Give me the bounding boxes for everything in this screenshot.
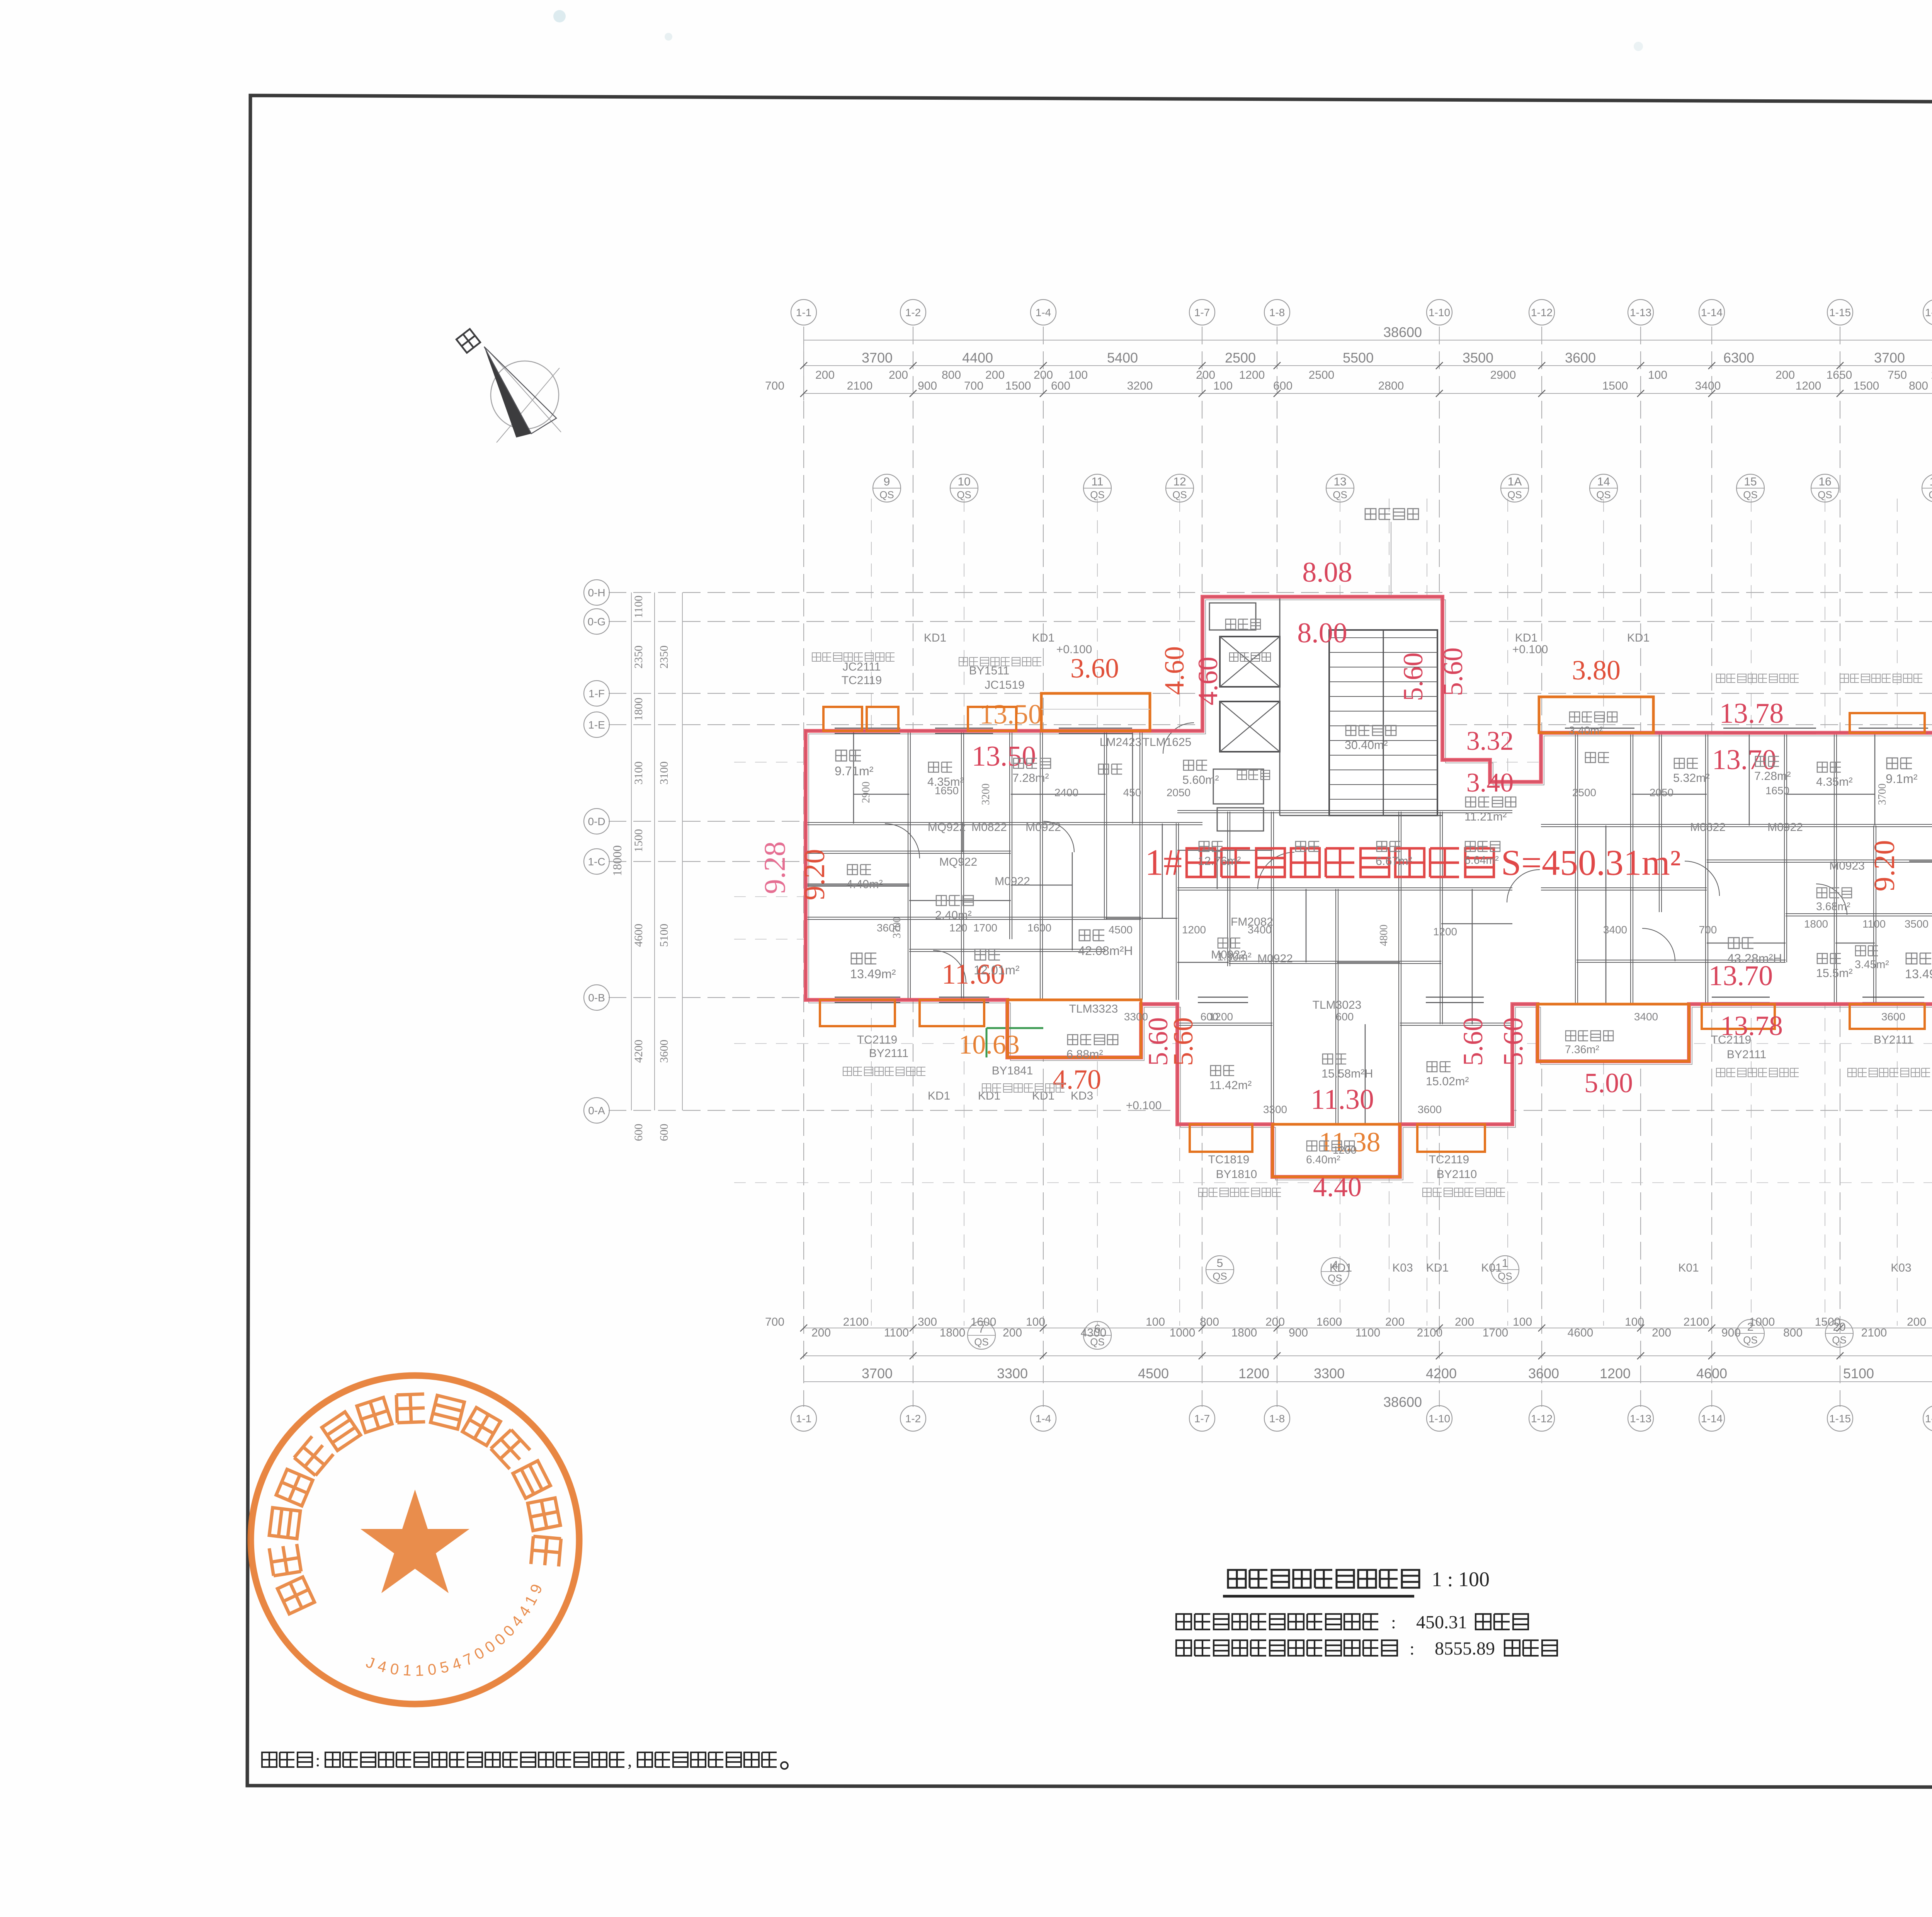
svg-text:800: 800 [1783,1326,1803,1339]
svg-text:2350: 2350 [658,645,670,669]
svg-text:QS: QS [1832,1334,1847,1346]
svg-text:1 : 100: 1 : 100 [1432,1568,1490,1591]
svg-text:1200: 1200 [1433,926,1457,938]
svg-text:1800: 1800 [940,1326,966,1339]
svg-text:1100: 1100 [884,1326,909,1339]
svg-text:K03: K03 [1891,1262,1911,1274]
svg-text:12.76m²: 12.76m² [1198,855,1241,868]
svg-text:QS: QS [1818,489,1832,501]
svg-text:5400: 5400 [1107,350,1138,366]
svg-text:13: 13 [1333,475,1346,488]
svg-text:1700: 1700 [973,922,997,934]
svg-text:1500: 1500 [632,829,645,852]
svg-text:1500: 1500 [1005,380,1031,392]
svg-text:1800: 1800 [1804,918,1828,930]
svg-text:1500: 1500 [1854,380,1879,392]
svg-text:2400: 2400 [1054,787,1078,798]
svg-text:4200: 4200 [1426,1365,1457,1381]
svg-text:1100: 1100 [632,596,645,618]
svg-text:BY2111: BY2111 [1874,1033,1913,1046]
svg-text:100: 100 [1146,1316,1165,1328]
svg-text:TC2119: TC2119 [842,674,882,687]
svg-text:11: 11 [1091,475,1103,488]
svg-text:+0.100: +0.100 [1126,1099,1162,1112]
svg-text:1500: 1500 [1602,380,1628,392]
svg-text:QS: QS [957,489,971,501]
svg-text:3600: 3600 [1418,1103,1442,1115]
svg-text:2050: 2050 [1650,787,1673,798]
svg-text:2100: 2100 [1861,1326,1887,1339]
svg-text:BY2111: BY2111 [1727,1048,1766,1061]
svg-text:4600: 4600 [1568,1326,1594,1339]
svg-text:3400: 3400 [1634,1011,1658,1023]
svg-text:4.60: 4.60 [1192,657,1223,705]
svg-text:1: 1 [415,1662,424,1680]
svg-text:200: 200 [815,369,835,381]
svg-text:100: 100 [1648,369,1667,381]
svg-text:13.49m²: 13.49m² [850,967,896,981]
svg-text:+0.100: +0.100 [1512,643,1548,656]
svg-text:BY1841: BY1841 [992,1064,1033,1077]
svg-text:BY1810: BY1810 [1216,1168,1257,1181]
svg-text:3500: 3500 [1463,350,1493,366]
svg-text:1800: 1800 [1231,1326,1257,1339]
svg-text:KD1: KD1 [1032,632,1054,644]
svg-text:8555.89: 8555.89 [1435,1638,1495,1659]
svg-text:13.50: 13.50 [980,699,1042,730]
svg-text:800: 800 [942,369,961,381]
svg-text:1: 1 [1502,1257,1509,1270]
svg-text:KD1: KD1 [1330,1262,1352,1274]
svg-text:4.40m²: 4.40m² [846,878,883,891]
svg-text:200: 200 [1907,1316,1926,1328]
svg-text:1-C: 1-C [588,856,605,868]
svg-text:6.67m²: 6.67m² [1376,855,1412,868]
svg-text:3700: 3700 [862,1365,893,1381]
svg-text:M0923: M0923 [1829,860,1865,872]
svg-text:5.60: 5.60 [1498,1017,1529,1066]
svg-text:1100: 1100 [1355,1326,1381,1339]
svg-text:1200: 1200 [1182,924,1206,936]
svg-text:1: 1 [402,1662,412,1679]
svg-text:KD3: KD3 [1071,1090,1093,1102]
svg-text:1-F: 1-F [588,688,605,700]
svg-text:7.36m²: 7.36m² [1565,1044,1599,1056]
svg-text:600: 600 [632,1124,645,1141]
svg-text:700: 700 [765,380,784,392]
svg-text:3400: 3400 [1695,380,1721,392]
svg-text:900: 900 [918,380,937,392]
svg-text:QS: QS [1929,489,1932,501]
svg-text:1000: 1000 [1931,369,1932,381]
svg-text:6300: 6300 [1723,350,1754,366]
svg-text:4600: 4600 [1696,1365,1727,1381]
svg-text:9.28: 9.28 [758,841,791,894]
svg-text:3.40: 3.40 [1466,768,1514,798]
svg-text:1-8: 1-8 [1269,306,1285,318]
svg-text:K03: K03 [1392,1262,1413,1274]
svg-text:3500: 3500 [1905,918,1929,930]
svg-text:JC2111: JC2111 [843,661,881,673]
svg-text:,: , [628,1750,632,1770]
svg-text:2800: 2800 [1378,380,1404,392]
svg-text:9.1m²: 9.1m² [1886,772,1918,786]
svg-text:11.30: 11.30 [1311,1084,1374,1115]
svg-text:1200: 1200 [1333,1144,1357,1156]
svg-text:2.40m²: 2.40m² [935,909,972,922]
svg-text:1600: 1600 [1316,1316,1342,1328]
svg-text:7.28m²: 7.28m² [1754,770,1791,783]
svg-text:12.01m²: 12.01m² [974,963,1020,977]
svg-text:3200: 3200 [980,783,992,805]
svg-text:QS: QS [1743,489,1758,501]
svg-text:3700: 3700 [862,350,893,366]
svg-text:16: 16 [1818,475,1831,488]
svg-text:1000: 1000 [1170,1326,1196,1339]
svg-text:1-7: 1-7 [1194,1413,1210,1425]
svg-text:3100: 3100 [658,761,670,785]
svg-text:1-14: 1-14 [1701,306,1723,318]
svg-text:0-A: 0-A [588,1105,605,1117]
svg-text:5100: 5100 [1843,1365,1874,1381]
svg-text:1500: 1500 [1815,1316,1841,1328]
svg-text:38600: 38600 [1383,1394,1422,1410]
svg-text:1-15: 1-15 [1829,1413,1851,1425]
svg-text:QS: QS [1172,489,1187,501]
svg-text:900: 900 [1721,1326,1741,1339]
svg-text:QS: QS [1596,489,1611,501]
svg-text:1650: 1650 [1765,785,1789,797]
svg-text:3600: 3600 [1528,1365,1559,1381]
svg-text:3700: 3700 [1874,350,1905,366]
svg-text:0-G: 0-G [588,616,606,628]
svg-text:30.40m²: 30.40m² [1345,739,1388,752]
svg-text:100: 100 [1625,1316,1644,1328]
svg-text:1200: 1200 [1796,380,1821,392]
svg-text:1-12: 1-12 [1531,306,1553,318]
svg-text:700: 700 [964,380,983,392]
svg-text:200: 200 [1034,369,1053,381]
svg-text:2100: 2100 [1684,1316,1709,1328]
svg-text:3300: 3300 [1124,1011,1148,1023]
svg-text:200: 200 [1652,1326,1671,1339]
svg-text:3600: 3600 [658,1040,670,1063]
svg-text:4400: 4400 [962,350,993,366]
svg-text:750: 750 [1888,369,1907,381]
svg-text:100: 100 [1513,1316,1532,1328]
svg-text:8.00: 8.00 [1297,617,1347,649]
svg-text:3200: 3200 [1127,380,1153,392]
svg-text:1-16: 1-16 [1925,1413,1932,1425]
svg-text:1-2: 1-2 [905,306,921,318]
svg-text:0-D: 0-D [588,815,605,827]
svg-text:K01: K01 [1678,1262,1699,1274]
svg-text:M0822: M0822 [971,821,1007,834]
svg-text:1200: 1200 [1238,1365,1269,1381]
svg-text:100: 100 [1213,380,1233,392]
svg-text:M0822: M0822 [1690,821,1726,834]
svg-text:3.80: 3.80 [1572,655,1621,686]
svg-text:QS: QS [1213,1270,1227,1282]
svg-text:4.60: 4.60 [1159,646,1190,695]
svg-text:450.31: 450.31 [1416,1612,1467,1633]
svg-text:200: 200 [1455,1316,1474,1328]
svg-text:2500: 2500 [1572,787,1596,798]
svg-text:800: 800 [1200,1316,1219,1328]
svg-text:600: 600 [1273,380,1293,392]
svg-text:100: 100 [1026,1316,1045,1328]
svg-text:200: 200 [811,1326,831,1339]
svg-text:1-8: 1-8 [1269,1413,1285,1425]
svg-text:10.63: 10.63 [959,1030,1020,1060]
svg-text:KD1: KD1 [928,1090,950,1102]
svg-text:QS: QS [1743,1334,1758,1346]
svg-text:3100: 3100 [632,761,645,785]
svg-text:5.60: 5.60 [1458,1017,1488,1066]
svg-text:6.88m²: 6.88m² [1066,1048,1103,1061]
svg-text:2900: 2900 [1490,369,1516,381]
svg-text:700: 700 [765,1316,784,1328]
svg-text:5.32m²: 5.32m² [1673,771,1710,785]
svg-text::: : [315,1750,320,1770]
svg-text:1-4: 1-4 [1036,306,1051,318]
svg-text:600: 600 [1336,1011,1354,1023]
svg-text:3400: 3400 [1248,924,1272,936]
svg-text:BY2110: BY2110 [1437,1168,1477,1181]
svg-text:1600: 1600 [971,1316,997,1328]
svg-text:2500: 2500 [1309,369,1335,381]
svg-text:200: 200 [985,369,1005,381]
svg-text:S=450.31m²: S=450.31m² [1501,843,1681,883]
svg-text:M0922: M0922 [1026,821,1061,834]
svg-text:5.60: 5.60 [1168,1017,1199,1066]
svg-text:3.40m²: 3.40m² [1569,725,1603,737]
svg-text:3600: 3600 [1565,350,1596,366]
svg-text:1000: 1000 [1749,1316,1775,1328]
svg-text:200: 200 [1196,369,1215,381]
svg-text:7.28m²: 7.28m² [1012,771,1049,785]
svg-text:1-10: 1-10 [1429,1413,1450,1425]
svg-text:LM2423: LM2423 [1100,736,1141,749]
svg-text:TLM3323: TLM3323 [1069,1003,1118,1015]
svg-text:800: 800 [1909,380,1928,392]
svg-text:6.64m²: 6.64m² [1464,854,1499,867]
svg-text:+0.100: +0.100 [1056,643,1092,656]
svg-text:4.40: 4.40 [1313,1171,1362,1202]
svg-text:TC1819: TC1819 [1208,1153,1250,1166]
svg-text:900: 900 [1289,1326,1308,1339]
svg-text::: : [1391,1612,1396,1632]
svg-text:2100: 2100 [1417,1326,1443,1339]
svg-text:1-1: 1-1 [796,1413,811,1425]
svg-text:9: 9 [884,475,890,488]
svg-text:9.71m²: 9.71m² [835,764,874,778]
svg-text:3600: 3600 [1881,1011,1905,1023]
svg-text:13.78: 13.78 [1719,698,1784,729]
svg-text:TC2119: TC2119 [1711,1033,1752,1046]
svg-text:K01: K01 [1481,1262,1502,1274]
svg-text:5500: 5500 [1343,350,1374,366]
svg-text:13.49m²: 13.49m² [1905,967,1932,981]
svg-text:2100: 2100 [847,380,873,392]
svg-text:3300: 3300 [997,1365,1028,1381]
svg-text:200: 200 [1385,1316,1405,1328]
svg-text::: : [1410,1639,1415,1658]
svg-text:4500: 4500 [1109,924,1133,936]
svg-text:120: 120 [949,922,968,934]
svg-text:1650: 1650 [1827,369,1852,381]
svg-text:QS: QS [1333,489,1347,501]
svg-text:0-B: 0-B [588,992,605,1004]
svg-text:700: 700 [1699,924,1717,936]
svg-text:1-7: 1-7 [1194,306,1210,318]
svg-text:1-10: 1-10 [1429,306,1450,318]
svg-text:8.08: 8.08 [1302,557,1352,588]
svg-text:1#: 1# [1145,842,1182,883]
svg-text:QS: QS [879,489,894,501]
svg-text:1600: 1600 [1027,922,1051,934]
svg-text:TC2119: TC2119 [857,1033,898,1046]
svg-text:M0922: M0922 [1767,821,1803,834]
svg-text:1-14: 1-14 [1701,1413,1723,1425]
svg-text:200: 200 [1003,1326,1022,1339]
svg-text:3400: 3400 [1603,924,1627,936]
svg-text:1A: 1A [1508,475,1522,488]
svg-text:18000: 18000 [610,845,624,876]
svg-text:1-E: 1-E [588,719,605,731]
svg-text:MQ922: MQ922 [928,821,966,834]
svg-text:BY2111: BY2111 [869,1047,908,1060]
svg-text:10: 10 [957,475,970,488]
svg-text:4300: 4300 [1081,1326,1107,1339]
svg-text:1-16: 1-16 [1925,306,1932,318]
svg-text:5.00: 5.00 [1584,1067,1633,1098]
svg-text:5.60: 5.60 [1437,647,1468,696]
svg-text:12: 12 [1173,475,1186,488]
svg-text:450: 450 [1123,787,1141,798]
svg-text:4800: 4800 [1378,924,1390,946]
svg-text:TLM3023: TLM3023 [1313,999,1362,1011]
svg-text:2500: 2500 [1225,350,1256,366]
svg-text:QS: QS [1507,489,1522,501]
svg-text:14: 14 [1597,475,1610,488]
svg-text:JC1519: JC1519 [985,679,1024,691]
svg-text:2900: 2900 [860,781,872,803]
svg-text:TC2119: TC2119 [1429,1153,1469,1166]
svg-text:0-H: 0-H [588,587,605,599]
svg-text:4200: 4200 [632,1040,645,1063]
svg-text:MQ922: MQ922 [939,856,977,868]
svg-text:1200: 1200 [1209,1011,1233,1023]
svg-text:3300: 3300 [1314,1365,1345,1381]
svg-text:1-15: 1-15 [1829,306,1851,318]
svg-text:9.20: 9.20 [1868,840,1901,892]
svg-text:1-13: 1-13 [1630,1413,1651,1425]
svg-text:1-13: 1-13 [1630,306,1651,318]
svg-text:2100: 2100 [843,1316,869,1328]
svg-text:1100: 1100 [1862,918,1886,930]
svg-text:11.42m²: 11.42m² [1209,1079,1252,1092]
svg-text:4.35m²: 4.35m² [1816,775,1853,788]
svg-text:1650: 1650 [935,785,959,797]
svg-text:TLM1625: TLM1625 [1143,736,1192,749]
svg-text:9.20: 9.20 [798,849,831,901]
svg-text:11.21m²: 11.21m² [1464,810,1507,823]
svg-text:200: 200 [1776,369,1795,381]
svg-text:KD1: KD1 [924,632,946,644]
svg-text:3.32: 3.32 [1466,726,1514,756]
svg-text:4500: 4500 [1138,1365,1169,1381]
svg-text:3.60: 3.60 [1070,653,1119,684]
svg-text:3600: 3600 [877,922,901,934]
svg-text:5.60: 5.60 [1398,652,1429,701]
svg-text:15.58m²H: 15.58m²H [1321,1067,1373,1080]
svg-text:1-4: 1-4 [1036,1413,1051,1425]
svg-text:17: 17 [1929,475,1932,488]
svg-text:3.68m²: 3.68m² [1816,901,1850,913]
svg-text:KD1: KD1 [1515,632,1537,644]
svg-text:5: 5 [1217,1257,1223,1270]
svg-text:2050: 2050 [1167,787,1190,798]
svg-text:2350: 2350 [632,645,645,669]
svg-text:5.60m²: 5.60m² [1182,773,1219,787]
svg-text:1-2: 1-2 [905,1413,921,1425]
svg-text:200: 200 [889,369,908,381]
svg-text:43.28m²H: 43.28m²H [1727,952,1782,965]
svg-text:200: 200 [1265,1316,1285,1328]
svg-text:1800: 1800 [632,698,645,721]
svg-text:4600: 4600 [632,924,645,947]
svg-text:1200: 1200 [1600,1365,1631,1381]
svg-text:1700: 1700 [1483,1326,1509,1339]
svg-text:1200: 1200 [1239,369,1265,381]
svg-text:5100: 5100 [658,924,670,947]
svg-text:1-1: 1-1 [796,306,811,318]
svg-text:KD1: KD1 [1426,1262,1449,1274]
svg-text:15.02m²: 15.02m² [1426,1075,1469,1088]
svg-text:15.5m²: 15.5m² [1816,967,1853,980]
svg-text:600: 600 [658,1124,670,1141]
svg-text:M0922: M0922 [995,875,1030,888]
svg-text:QS: QS [1090,489,1105,501]
svg-text:1-12: 1-12 [1531,1413,1553,1425]
svg-text:3300: 3300 [1263,1103,1287,1115]
svg-text:3.45m²: 3.45m² [1855,958,1889,971]
svg-text:38600: 38600 [1383,324,1422,340]
svg-text:QS: QS [974,1336,989,1348]
svg-text:15: 15 [1744,475,1757,488]
svg-text:100: 100 [1068,369,1088,381]
svg-text:42.08m²H: 42.08m²H [1078,944,1133,958]
svg-text:3700: 3700 [1876,783,1888,805]
svg-text:600: 600 [1051,380,1070,392]
svg-text:KD1: KD1 [1627,632,1650,644]
svg-text:300: 300 [918,1316,937,1328]
svg-text:M0922: M0922 [1257,952,1293,965]
svg-text:M0922: M0922 [1211,948,1247,961]
